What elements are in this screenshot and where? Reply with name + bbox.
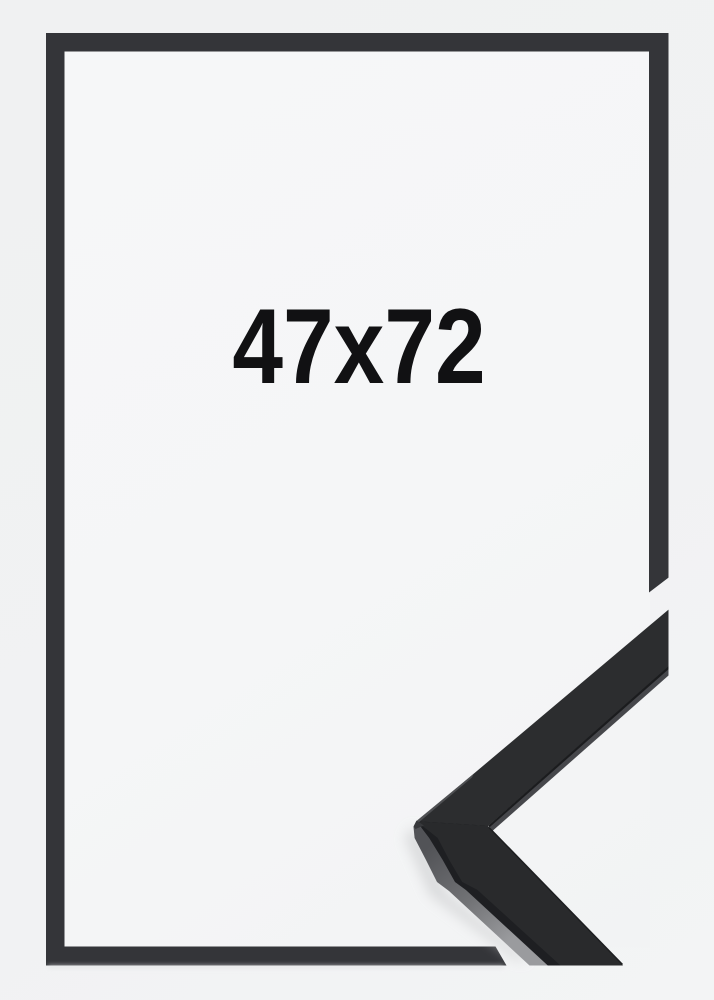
svg-text:47x72: 47x72 [232,286,485,405]
